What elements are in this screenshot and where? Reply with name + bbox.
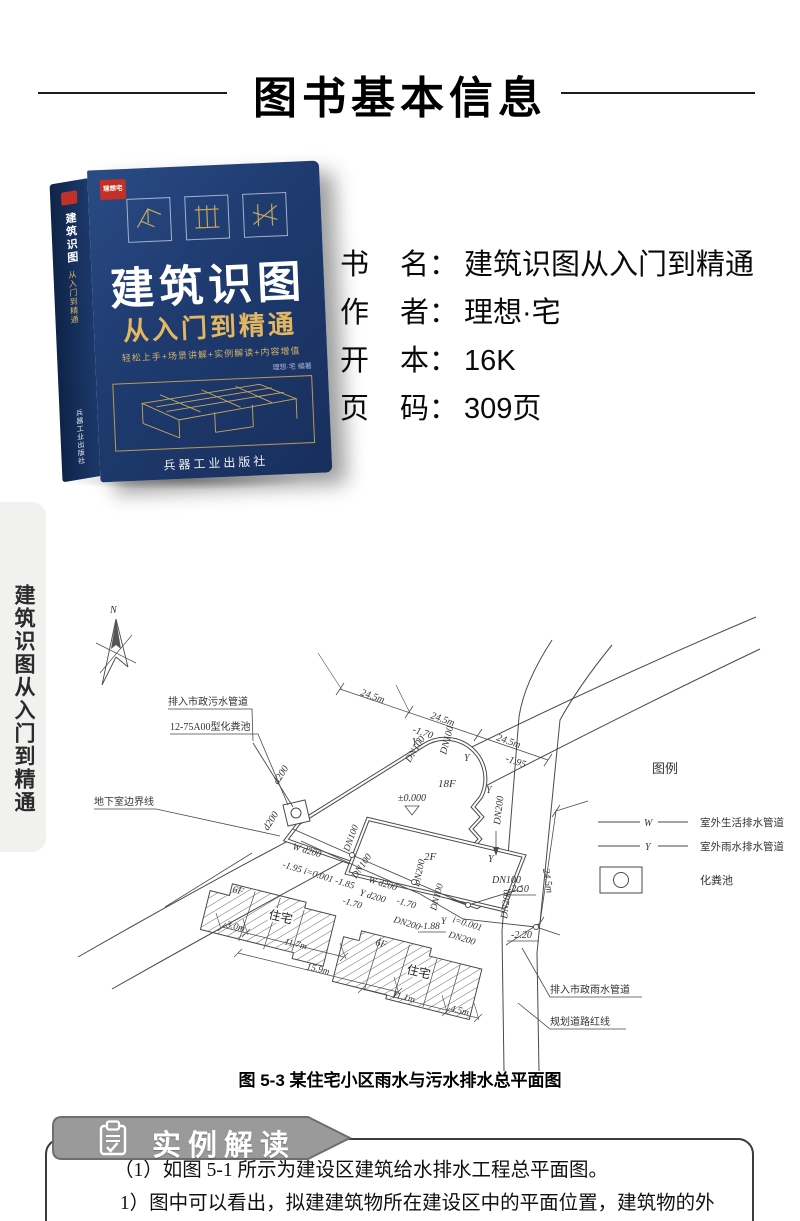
beam-sketch-icon — [126, 197, 172, 243]
svg-text:-1.88: -1.88 — [420, 922, 440, 932]
legend: 图例 W 室外生活排水管道 Y 室外雨水排水管道 化粪池 — [598, 761, 784, 893]
svg-text:d200: d200 — [261, 810, 281, 833]
svg-text:DN200: DN200 — [446, 930, 476, 948]
svg-text:-2.20: -2.20 — [511, 930, 532, 941]
legend-label-y: 室外雨水排水管道 — [700, 840, 784, 853]
info-label: 书 — [340, 241, 400, 283]
legend-label-septic: 化粪池 — [700, 873, 733, 887]
septic-tank-symbol: d200 d200 — [253, 743, 310, 833]
truss-sketch-icon — [242, 192, 288, 238]
rain-outfall-label: 排入市政雨水管道 — [550, 983, 630, 996]
info-value: 理想·宅 — [464, 289, 561, 331]
legend-label-w: 室外生活排水管道 — [700, 816, 784, 829]
paragraph-2: 1）图中可以看出，拟建建筑物所在建设区中的平面位置，建筑物的外形、名称、 — [75, 1187, 724, 1221]
info-label: 作 — [340, 289, 400, 331]
spine-title: 建筑识图 — [62, 211, 80, 266]
svg-text:24.5m: 24.5m — [359, 687, 386, 705]
clipboard-icon — [98, 1120, 128, 1161]
info-value: 16K — [464, 345, 516, 378]
svg-text:15.9m: 15.9m — [305, 962, 330, 977]
svg-text:N: N — [109, 605, 118, 616]
svg-text:DN200: DN200 — [499, 889, 514, 920]
book-cover-photo: 建筑识图 从入门到精通 兵器工业出版社 理想宅 建筑识图 从入门到精通 轻松上手… — [45, 158, 349, 500]
pages-row: 页码：309页 — [340, 385, 754, 433]
publisher-logo-badge: 理想宅 — [99, 179, 126, 200]
legend-title: 图例 — [652, 761, 678, 776]
basement-line-label: 地下室边界线 — [94, 795, 154, 808]
legend-symbol-w: W — [644, 818, 654, 829]
book-name-row: 书名：建筑识图从入门到精通 — [340, 241, 754, 289]
product-detail-page: 图书基本信息 建筑识图 从入门到精通 兵器工业出版社 理想宅 建筑识 — [0, 0, 800, 1221]
svg-text:i=0.001: i=0.001 — [451, 915, 483, 933]
header-rule-right — [561, 92, 755, 94]
residence-west — [199, 879, 337, 966]
legend-septic-symbol — [600, 867, 642, 893]
cover-publisher: 兵器工业出版社 — [100, 449, 333, 476]
svg-text:-1.95 i=0.001 -1.85: -1.95 i=0.001 -1.85 — [281, 860, 356, 891]
svg-text:24.5m: 24.5m — [429, 710, 456, 728]
cover-structure-drawing — [112, 375, 315, 452]
leader-labels: 排入市政污水管道 12-75A00型化粪池 地下室边界线 — [94, 695, 288, 836]
book-info-list: 书名：建筑识图从入门到精通 作者：理想·宅 开本：16K 页码：309页 — [340, 241, 754, 433]
info-value: 建筑识图从入门到精通 — [464, 241, 754, 283]
book-front-cover: 理想宅 建筑识图 从入门到精通 轻松上手+场景讲解+实例解读+内容增值 理想·宅… — [87, 161, 332, 483]
svg-text:-1.70: -1.70 — [341, 896, 363, 911]
svg-text:Y: Y — [486, 785, 493, 796]
site-plan-figure: N 24.5m 24.5m — [0, 593, 800, 1071]
cover-author: 理想·宅 编著 — [272, 361, 312, 373]
format-row: 开本：16K — [340, 337, 754, 385]
svg-text:24.5m: 24.5m — [540, 868, 555, 894]
zero-level-label: ±0.000 — [398, 793, 426, 804]
figure-caption: 图 5-3 某住宅小区雨水与污水排水总平面图 — [0, 1066, 800, 1091]
cover-detail-icons — [126, 192, 288, 243]
legend-symbol-y: Y — [645, 842, 652, 853]
info-value: 309页 — [464, 385, 541, 427]
info-label: 开 — [340, 337, 400, 379]
svg-text:-1.95: -1.95 — [504, 753, 527, 770]
spine-logo — [61, 190, 77, 206]
spine-publisher: 兵器工业出版社 — [73, 408, 85, 466]
septic-type-label: 12-75A00型化粪池 — [170, 720, 251, 733]
spine-subtitle: 从入门到精通 — [67, 269, 80, 325]
section-tab-label: 实例解读 — [152, 1122, 296, 1164]
label-18f: 18F — [438, 778, 456, 790]
north-arrow: N — [96, 605, 136, 685]
author-row: 作者：理想·宅 — [340, 289, 754, 337]
svg-text:Y: Y — [441, 917, 448, 927]
svg-text:-1.70: -1.70 — [395, 896, 417, 911]
svg-text:DN200: DN200 — [391, 915, 421, 933]
page-title: 图书基本信息 — [0, 62, 800, 126]
svg-text:DN200: DN200 — [492, 795, 507, 826]
red-line-label: 规划道路红线 — [550, 1015, 610, 1028]
section-ribbon: 实例解读 — [50, 1115, 370, 1161]
label-2f: 2F — [424, 851, 437, 863]
sewer-outfall-label: 排入市政污水管道 — [168, 695, 248, 708]
info-label: 页 — [340, 385, 400, 427]
right-leader-labels: 排入市政雨水管道 规划道路红线 — [518, 948, 642, 1029]
svg-text:d200: d200 — [271, 764, 291, 787]
column-sketch-icon — [184, 195, 230, 241]
